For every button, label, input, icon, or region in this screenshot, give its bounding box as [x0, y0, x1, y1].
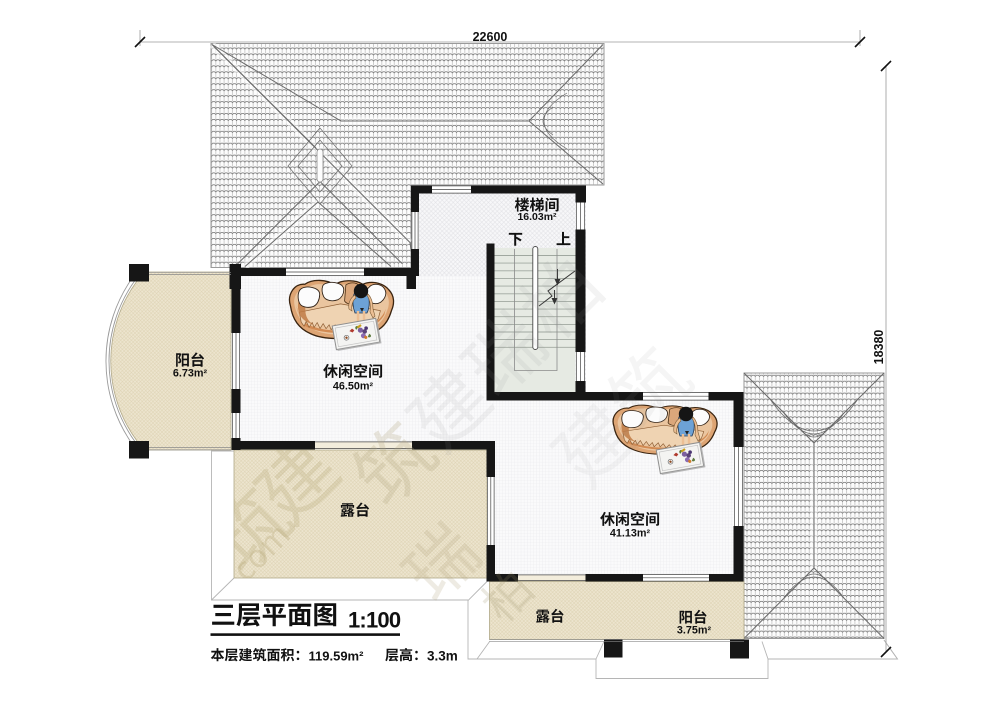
- svg-text:6.73m²: 6.73m²: [173, 367, 208, 379]
- svg-text:119.59m²: 119.59m²: [309, 649, 365, 664]
- svg-text:22600: 22600: [473, 30, 508, 44]
- svg-text:16.03m²: 16.03m²: [517, 211, 557, 223]
- svg-text:46.50m²: 46.50m²: [333, 380, 374, 392]
- svg-text:18380: 18380: [872, 330, 886, 365]
- svg-text:3.3m: 3.3m: [427, 649, 458, 664]
- svg-text:1:100: 1:100: [348, 608, 401, 633]
- svg-text:41.13m²: 41.13m²: [610, 527, 651, 539]
- svg-text:3.75m²: 3.75m²: [677, 625, 712, 637]
